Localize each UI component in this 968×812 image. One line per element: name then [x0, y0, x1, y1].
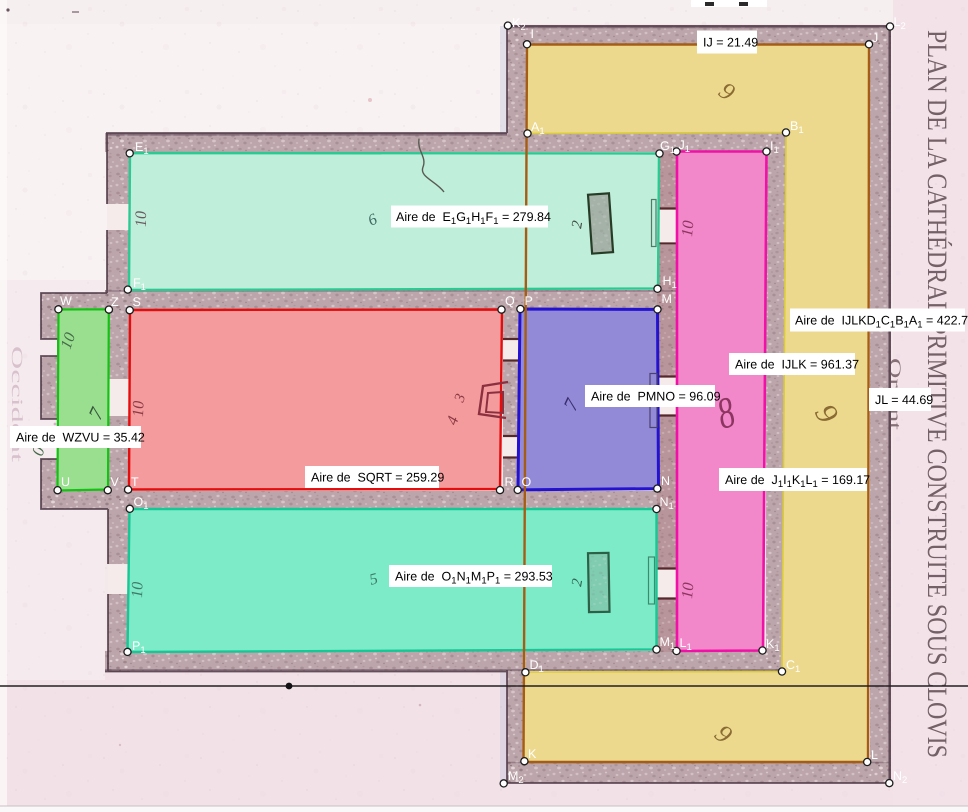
svg-text:10: 10 — [679, 582, 697, 599]
svg-text:IJ = 21.49: IJ = 21.49 — [703, 36, 758, 50]
svg-text:L: L — [871, 748, 878, 762]
svg-text:Aire de WZVU = 35.42: Aire de WZVU = 35.42 — [16, 431, 145, 445]
svg-text:N: N — [661, 474, 670, 488]
svg-text:Aire de IJLK = 961.37: Aire de IJLK = 961.37 — [735, 358, 859, 372]
svg-text:O: O — [522, 475, 532, 489]
svg-text:T: T — [131, 475, 139, 489]
svg-text:P: P — [525, 294, 533, 308]
svg-text:10: 10 — [130, 401, 148, 418]
svg-text:Q: Q — [505, 294, 515, 308]
svg-text:V: V — [111, 475, 120, 489]
svg-text:K: K — [528, 747, 537, 761]
svg-text:Aire de SQRT = 259.29: Aire de SQRT = 259.29 — [311, 471, 444, 485]
svg-text:Z: Z — [111, 295, 119, 309]
svg-text:10: 10 — [679, 220, 697, 237]
svg-text:10: 10 — [133, 211, 150, 227]
svg-text:S: S — [133, 295, 141, 309]
svg-text:R: R — [505, 475, 514, 489]
svg-text:J: J — [872, 31, 878, 45]
svg-text:I: I — [531, 27, 534, 41]
svg-text:Aire de PMNO = 96.09: Aire de PMNO = 96.09 — [591, 390, 721, 404]
svg-text:10: 10 — [129, 582, 147, 599]
svg-text:M: M — [662, 292, 672, 306]
svg-text:U: U — [61, 475, 70, 489]
svg-text:JL = 44.69: JL = 44.69 — [875, 393, 933, 407]
svg-text:W: W — [60, 294, 72, 308]
